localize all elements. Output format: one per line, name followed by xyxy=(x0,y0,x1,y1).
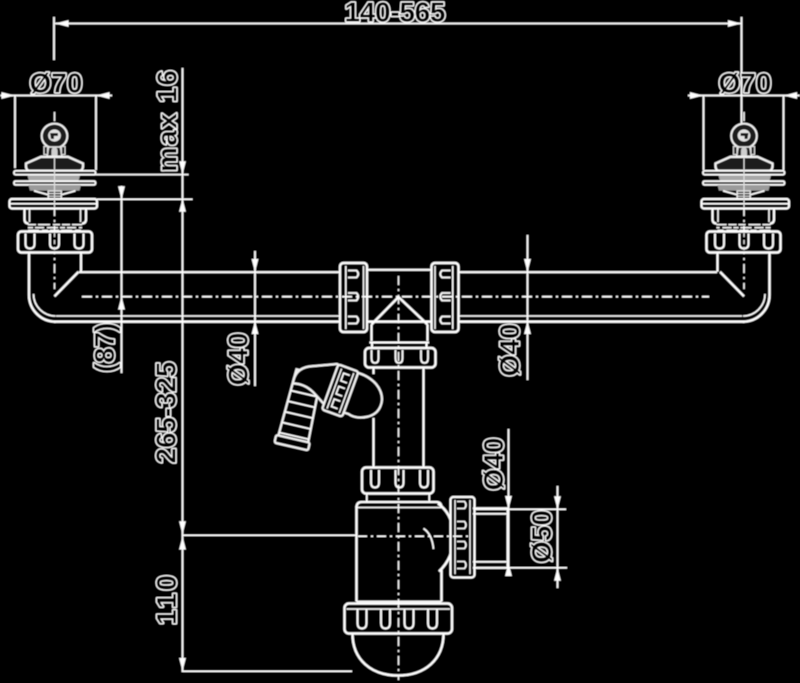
svg-text:Ø40: Ø40 xyxy=(223,333,254,386)
svg-text:110: 110 xyxy=(151,575,182,625)
svg-text:Ø40: Ø40 xyxy=(494,324,525,377)
svg-text:Ø70: Ø70 xyxy=(719,68,772,99)
svg-text:Ø70: Ø70 xyxy=(30,68,83,99)
svg-text:265-325: 265-325 xyxy=(151,362,182,464)
svg-text:max 16: max 16 xyxy=(152,70,183,172)
svg-text:(87): (87) xyxy=(89,323,120,373)
svg-text:Ø40: Ø40 xyxy=(478,438,509,491)
svg-text:Ø50: Ø50 xyxy=(526,510,557,563)
svg-text:140-565: 140-565 xyxy=(345,0,446,28)
